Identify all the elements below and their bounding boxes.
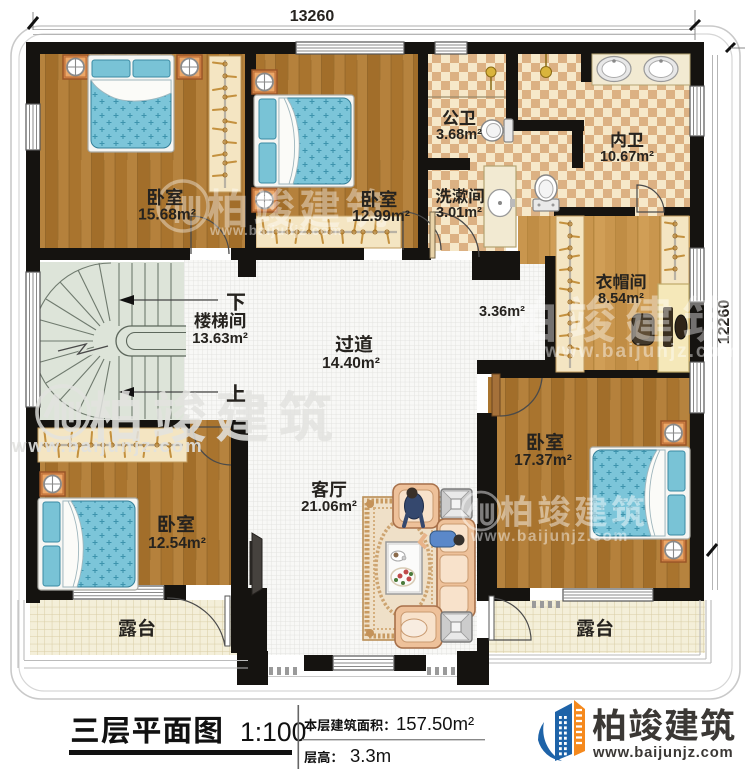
svg-text:3.68m²: 3.68m²: [436, 127, 482, 143]
svg-text:www.baijunjz.com: www.baijunjz.com: [470, 528, 629, 545]
svg-text:13.63m²: 13.63m²: [192, 330, 248, 347]
svg-text:3.3m: 3.3m: [350, 745, 391, 766]
svg-text:17.37m²: 17.37m²: [514, 452, 572, 469]
svg-text:www.baijunjz.com: www.baijunjz.com: [209, 223, 343, 238]
svg-text:3.01m²: 3.01m²: [436, 205, 482, 221]
svg-text:3.36m²: 3.36m²: [479, 304, 525, 320]
svg-text:1:100: 1:100: [240, 717, 306, 747]
svg-text:12.54m²: 12.54m²: [148, 535, 206, 552]
svg-text:www.baijunjz.com: www.baijunjz.com: [592, 745, 734, 761]
svg-text:15.68m²: 15.68m²: [138, 207, 196, 224]
svg-text:10.67m²: 10.67m²: [600, 149, 654, 165]
svg-text:157.50m²: 157.50m²: [396, 713, 474, 734]
svg-text:www.baijunjz.com: www.baijunjz.com: [544, 341, 741, 362]
svg-text:21.06m²: 21.06m²: [301, 498, 357, 515]
svg-text:13260: 13260: [290, 8, 335, 25]
svg-text:14.40m²: 14.40m²: [322, 355, 380, 372]
svg-text:8.54m²: 8.54m²: [598, 291, 644, 307]
svg-text:www.baijunjz.com: www.baijunjz.com: [11, 435, 204, 456]
svg-text:12.99m²: 12.99m²: [352, 208, 410, 225]
